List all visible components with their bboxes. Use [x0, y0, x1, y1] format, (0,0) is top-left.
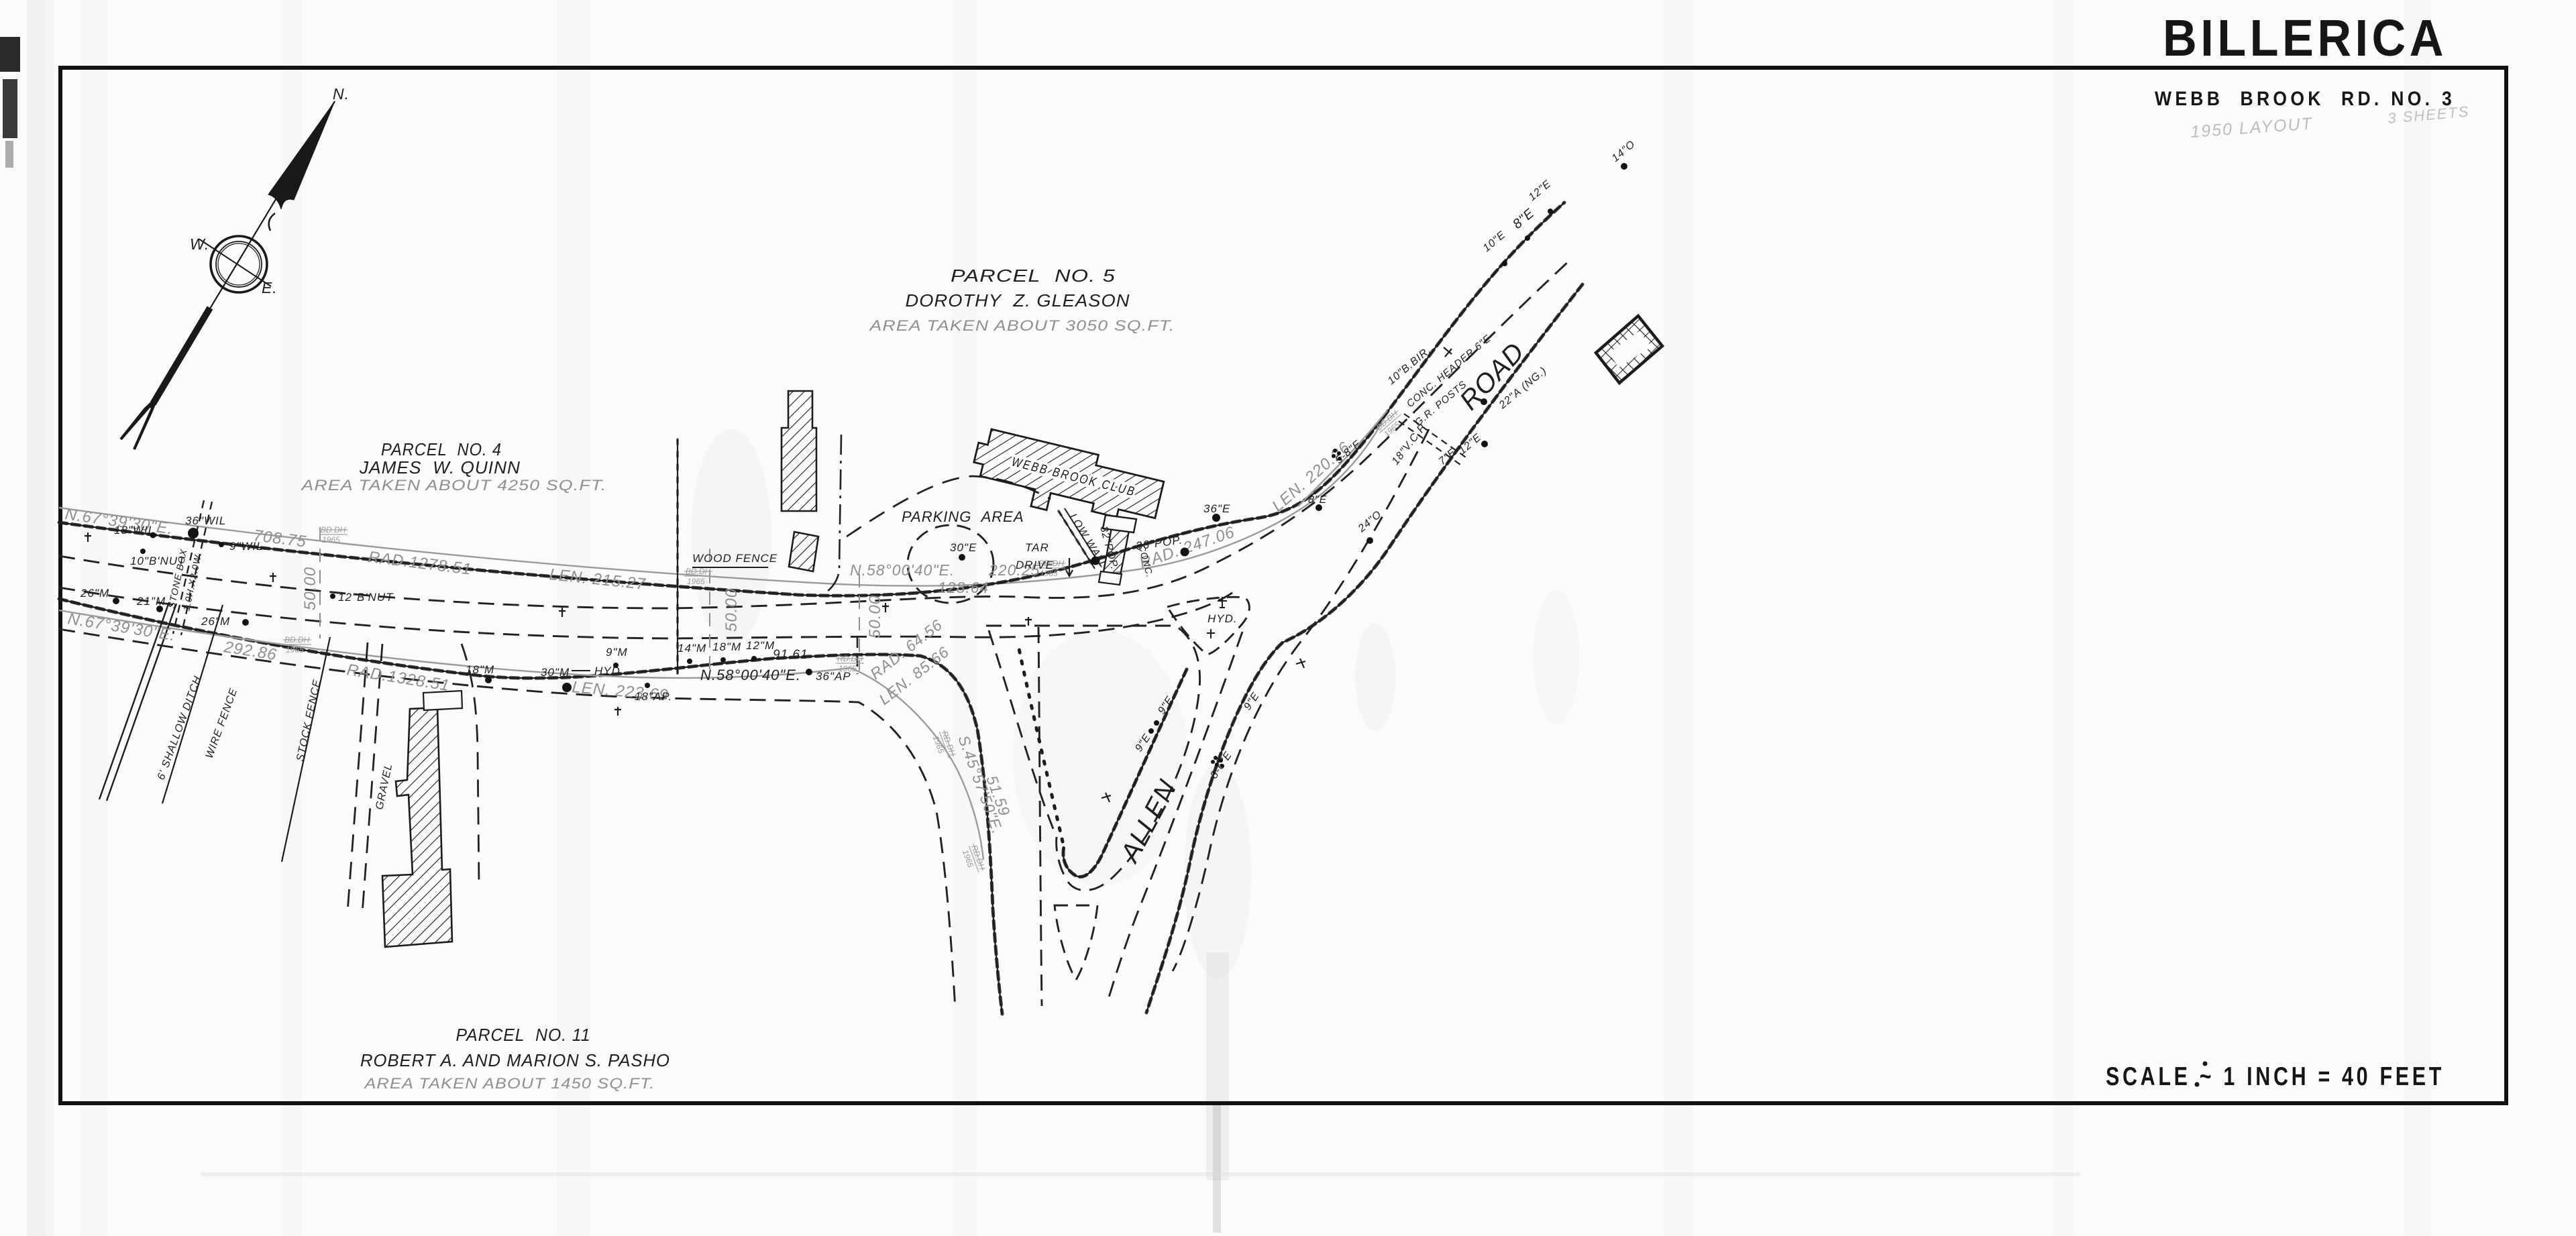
svg-text:36"AP: 36"AP [816, 670, 851, 683]
svg-text:WOOD FENCE: WOOD FENCE [692, 552, 777, 565]
svg-text:50.00: 50.00 [301, 567, 319, 610]
svg-text:26"M: 26"M [201, 615, 230, 628]
svg-text:W.: W. [190, 235, 209, 253]
svg-text:ROBERT A. AND MARION S. PASHO: ROBERT A. AND MARION S. PASHO [360, 1050, 670, 1070]
svg-text:26"M: 26"M [80, 587, 109, 600]
svg-text:18"M: 18"M [466, 663, 494, 676]
svg-text:1965: 1965 [687, 577, 705, 586]
svg-text:36"E: 36"E [1203, 502, 1230, 515]
svg-text:128.64: 128.64 [938, 579, 989, 596]
svg-text:50.00: 50.00 [866, 595, 884, 638]
svg-text:TAR: TAR [1025, 541, 1049, 554]
svg-text:8"E: 8"E [1308, 494, 1327, 506]
svg-text:PARCEL NO. 4: PARCEL NO. 4 [381, 439, 502, 459]
svg-text:E.: E. [262, 279, 278, 296]
svg-text:30"M: 30"M [541, 666, 570, 679]
svg-text:PARCEL NO. 5: PARCEL NO. 5 [951, 266, 1116, 286]
svg-text:50.00: 50.00 [722, 588, 741, 632]
svg-text:SCALE ~ 1 INCH = 40 FEET: SCALE ~ 1 INCH = 40 FEET [2106, 1062, 2445, 1091]
svg-text:21"M: 21"M [136, 595, 166, 608]
svg-text:12"M: 12"M [746, 639, 775, 652]
svg-text:AREA TAKEN ABOUT 4250 SQ.FT.: AREA TAKEN ABOUT 4250 SQ.FT. [300, 477, 606, 494]
svg-text:PARCEL NO. 11: PARCEL NO. 11 [456, 1025, 591, 1045]
svg-text:AREA TAKEN ABOUT 3050 SQ.FT.: AREA TAKEN ABOUT 3050 SQ.FT. [868, 317, 1175, 334]
svg-text:HYD.: HYD. [1207, 612, 1238, 625]
svg-text:9"WIL.: 9"WIL. [229, 540, 267, 553]
svg-text:PARKING AREA: PARKING AREA [902, 508, 1024, 525]
svg-text:N.: N. [333, 85, 350, 103]
svg-text:18"M: 18"M [712, 640, 741, 653]
svg-text:18"AP.: 18"AP. [635, 690, 672, 703]
svg-text:N.58°00'40"E.: N.58°00'40"E. [700, 667, 801, 683]
svg-text:36"WIL: 36"WIL [185, 514, 226, 527]
svg-text:9"M: 9"M [606, 646, 628, 659]
svg-text:BILLERICA: BILLERICA [2163, 9, 2447, 67]
svg-text:DOROTHY Z. GLEASON: DOROTHY Z. GLEASON [906, 290, 1130, 311]
svg-text:91.61: 91.61 [773, 648, 808, 662]
svg-text:JAMES W. QUINN: JAMES W. QUINN [359, 457, 521, 477]
svg-text:1965: 1965 [286, 645, 304, 655]
svg-text:30"E: 30"E [950, 541, 977, 554]
svg-text:AREA TAKEN ABOUT 1450 SQ.FT.: AREA TAKEN ABOUT 1450 SQ.FT. [363, 1075, 655, 1092]
svg-text:18"WIL: 18"WIL [114, 524, 155, 537]
svg-text:WEBB BROOK RD. NO. 3: WEBB BROOK RD. NO. 3 [2155, 88, 2455, 110]
svg-text:HYD.: HYD. [594, 665, 625, 677]
svg-text:14"M: 14"M [678, 642, 706, 655]
svg-text:N.58°00'40"E.: N.58°00'40"E. [850, 561, 955, 579]
svg-text:DRIVE: DRIVE [1016, 559, 1054, 571]
svg-text:1965: 1965 [322, 535, 340, 545]
svg-text:12"B'NUT: 12"B'NUT [338, 591, 394, 604]
